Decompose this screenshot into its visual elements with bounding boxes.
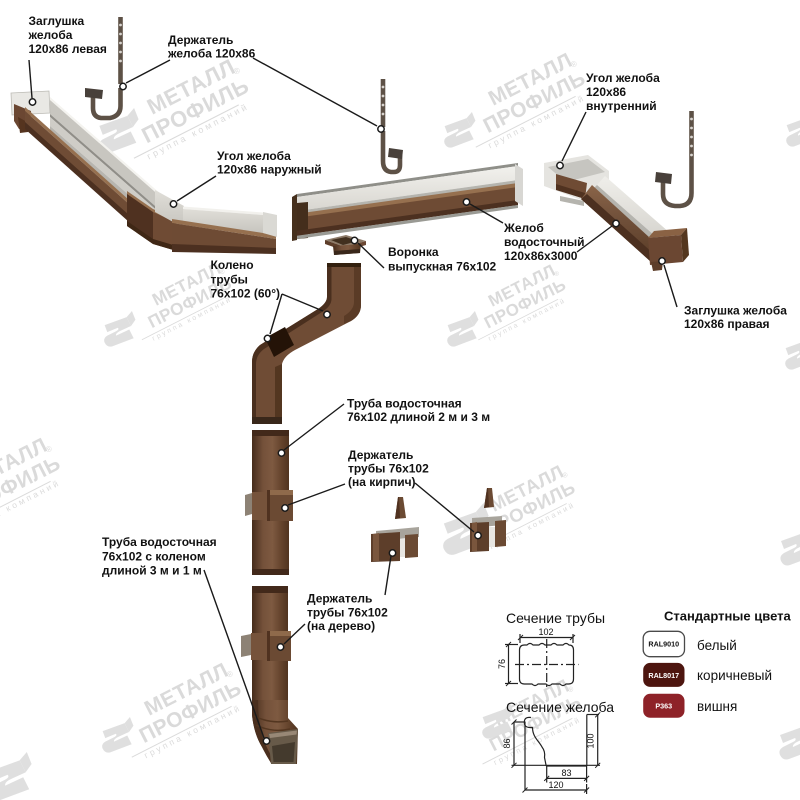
svg-text:Сечение желоба: Сечение желоба <box>506 699 614 715</box>
svg-text:Сечение трубы: Сечение трубы <box>506 610 605 626</box>
svg-text:Держатель: Держатель <box>348 448 413 462</box>
svg-text:Угол желоба: Угол желоба <box>586 71 660 85</box>
svg-text:Угол желоба: Угол желоба <box>217 149 291 163</box>
svg-text:(на дерево): (на дерево) <box>307 619 375 633</box>
svg-text:120х86: 120х86 <box>586 85 626 99</box>
svg-text:120х86 правая: 120х86 правая <box>684 317 770 331</box>
svg-text:Держатель: Держатель <box>307 592 372 606</box>
svg-text:86: 86 <box>502 738 512 748</box>
svg-text:76х102 с коленом: 76х102 с коленом <box>102 549 206 563</box>
svg-text:120: 120 <box>548 780 563 790</box>
svg-text:83: 83 <box>561 768 571 778</box>
svg-text:Желоб: Желоб <box>503 221 544 235</box>
svg-text:Труба водосточная: Труба водосточная <box>347 397 462 411</box>
svg-text:трубы 76х102: трубы 76х102 <box>348 462 429 476</box>
svg-text:трубы: трубы <box>211 272 248 286</box>
svg-text:76х102 (60°): 76х102 (60°) <box>211 287 281 301</box>
svg-text:водосточный: водосточный <box>504 235 584 249</box>
svg-text:100: 100 <box>586 733 596 748</box>
svg-text:RAL8017: RAL8017 <box>648 671 679 680</box>
svg-text:76х102 длиной 2 м и 3 м: 76х102 длиной 2 м и 3 м <box>347 410 490 424</box>
svg-text:Труба водосточная: Труба водосточная <box>102 535 217 549</box>
svg-text:(на кирпич): (на кирпич) <box>348 475 416 489</box>
svg-text:Держатель: Держатель <box>168 33 233 47</box>
svg-text:76: 76 <box>497 659 507 669</box>
svg-text:желоба: желоба <box>28 28 73 42</box>
svg-text:Заглушка: Заглушка <box>29 14 85 28</box>
svg-text:длиной 3 м и 1 м: длиной 3 м и 1 м <box>102 564 202 578</box>
svg-text:120х86 левая: 120х86 левая <box>29 42 107 56</box>
svg-text:120х86х3000: 120х86х3000 <box>504 249 578 263</box>
svg-text:102: 102 <box>538 627 553 637</box>
svg-text:P363: P363 <box>655 702 672 711</box>
svg-text:коричневый: коричневый <box>697 668 772 683</box>
svg-text:трубы 76х102: трубы 76х102 <box>307 605 388 619</box>
svg-text:Стандартные цвета: Стандартные цвета <box>664 609 791 624</box>
svg-text:RAL9010: RAL9010 <box>648 640 679 649</box>
svg-text:белый: белый <box>697 638 737 653</box>
svg-text:внутренний: внутренний <box>586 99 657 113</box>
svg-text:выпускная 76х102: выпускная 76х102 <box>388 259 497 273</box>
svg-text:желоба 120х86: желоба 120х86 <box>167 46 256 60</box>
svg-text:120х86 наружный: 120х86 наружный <box>217 163 322 177</box>
svg-text:Заглушка желоба: Заглушка желоба <box>684 304 787 318</box>
svg-text:Воронка: Воронка <box>388 245 439 259</box>
svg-text:Колено: Колено <box>211 258 254 272</box>
svg-text:вишня: вишня <box>697 699 737 714</box>
